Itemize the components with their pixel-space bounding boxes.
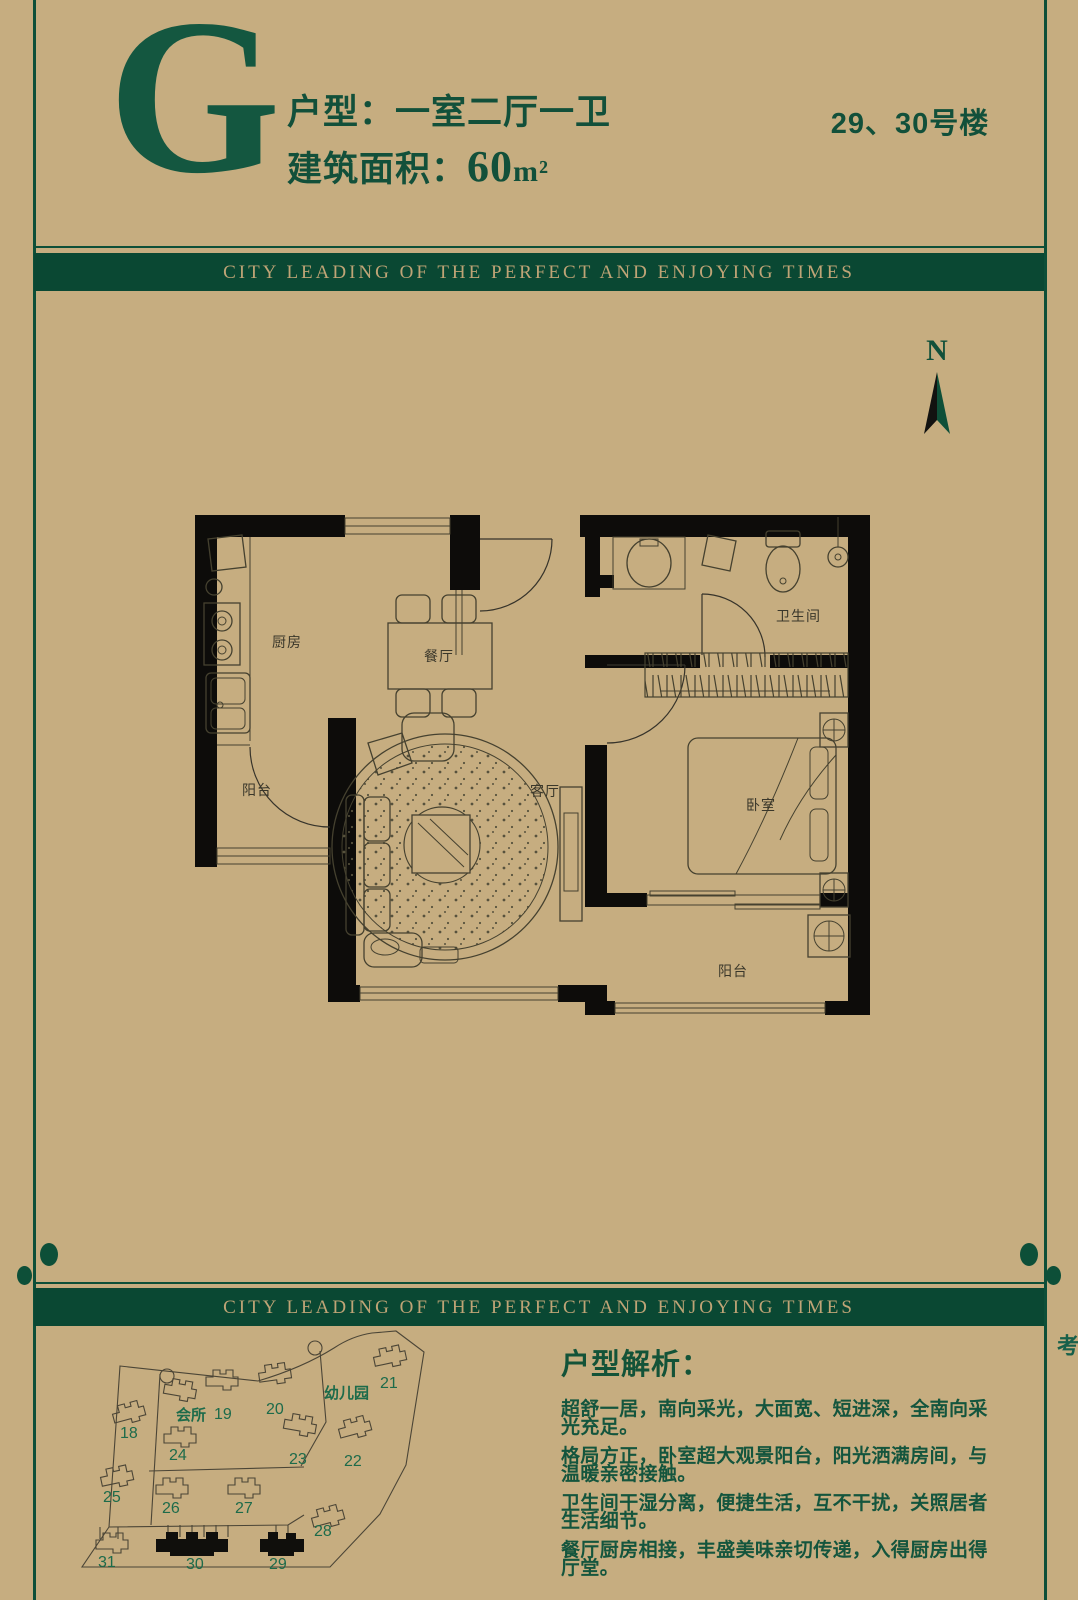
living-room-furniture [332,713,582,967]
building-label: 24 [169,1447,187,1464]
decor-dot [17,1266,32,1285]
clubhouse-label: 会所 [176,1406,206,1424]
building-label: 21 [380,1375,398,1392]
building-label: 22 [344,1453,362,1470]
building-label: 18 [120,1425,138,1442]
analysis-line: 餐厅厨房相接，丰盛美味亲切传递，入得厨房出得厅堂。 [561,1542,1001,1578]
building-label: 19 [214,1406,232,1423]
building-label: 29 [269,1556,287,1573]
balcony-appliance [808,915,850,957]
building-label: 26 [162,1500,180,1517]
decor-dot [1020,1243,1038,1266]
decor-dot [40,1243,58,1266]
area-unit: m² [513,155,549,188]
unit-letter: G [108,2,281,193]
right-frame-line [1044,0,1047,1600]
site-map-boundary [82,1331,424,1567]
bottom-divider-line [34,1282,1044,1284]
room-label-bedroom: 卧室 [746,797,776,813]
building-label: 30 [186,1556,204,1573]
floor-plan: 厨房 餐厅 客厅 卫生间 卧室 阳台 阳台 [180,495,880,1035]
site-map: 18 会所 19 20 21 幼儿园 22 23 24 25 26 27 28 … [72,1326,456,1600]
building-number: 29、30号楼 [790,100,1030,142]
building-label: 20 [266,1401,284,1418]
building-label: 28 [314,1523,332,1540]
top-banner: CITY LEADING OF THE PERFECT AND ENJOYING… [34,253,1044,291]
analysis-line: 卫生间干湿分离，便捷生活，互不干扰，关照居者生活细节。 [561,1495,1001,1531]
windows [217,518,825,1013]
title-block: 户型：一室二厅一卫 建筑面积：60m² [287,84,611,192]
building-label: 25 [103,1489,121,1506]
room-label-balcony-left: 阳台 [242,782,272,798]
compass: N [913,334,961,445]
site-map-buildings [96,1341,408,1556]
building-label: 31 [98,1554,116,1571]
flyer-page: { "colors": { "background": "#c6ad80", "… [0,0,1078,1600]
north-arrow-icon [915,368,959,440]
decor-dot [1046,1266,1061,1285]
building-label: 23 [289,1451,307,1468]
analysis-line: 超舒一居，南向采光，大面宽、短进深，全南向采光充足。 [561,1401,1001,1437]
compass-north-label: N [913,334,961,368]
building-30-footprint [156,1532,228,1556]
analysis-line: 格局方正，卧室超大观景阳台，阳光洒满房间，与温暖亲密接触。 [561,1448,1001,1484]
room-label-dining: 餐厅 [424,648,454,664]
analysis-block: 户型解析： 超舒一居，南向采光，大面宽、短进深，全南向采光充足。 格局方正，卧室… [561,1341,1001,1589]
building-label: 27 [235,1500,253,1517]
area-line: 建筑面积：60m² [287,141,611,192]
room-label-bathroom: 卫生间 [776,608,821,624]
bottom-banner: CITY LEADING OF THE PERFECT AND ENJOYING… [34,1288,1044,1326]
area-value: 60 [467,142,513,191]
kindergarten-label: 幼儿园 [324,1384,369,1402]
room-label-kitchen: 厨房 [272,634,302,650]
room-label-balcony-bottom: 阳台 [718,963,748,979]
top-divider-line [34,246,1044,248]
room-label-living: 客厅 [530,783,560,799]
side-note: 此户型只做参考 [1050,1334,1078,1514]
analysis-title: 户型解析： [561,1341,1001,1383]
unit-type-label: 户型：一室二厅一卫 [287,84,611,135]
walls [195,515,870,1015]
area-prefix: 建筑面积： [287,150,467,189]
left-frame-line [33,0,36,1600]
building-29-footprint [260,1532,304,1556]
bedroom-furniture [645,653,848,907]
